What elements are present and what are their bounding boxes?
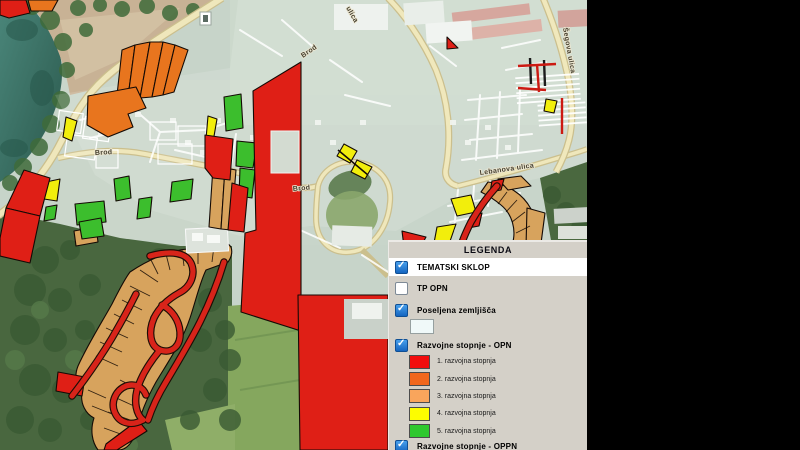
legend-row-tp-opn[interactable]: TP OPN [389, 280, 587, 297]
stage-label: 1. razvojna stopnja [437, 358, 496, 365]
swatch-poseljena-zemljisca [410, 319, 434, 334]
legend-label: Razvojne stopnje - OPN [417, 341, 512, 350]
legend-label: TEMATSKI SKLOP [417, 263, 490, 272]
legend-label: Poseljena zemljišča [417, 306, 496, 315]
legend-row-razvojne-stopnje-opn[interactable]: Razvojne stopnje - OPN [389, 337, 587, 354]
legend-stage-2: 2. razvojna stopnja [409, 370, 496, 387]
stage-label: 4. razvojna stopnja [437, 410, 496, 417]
swatch-stage-4 [409, 407, 430, 421]
swatch-stage-2 [409, 372, 430, 386]
swatch-stage-5 [409, 424, 430, 438]
legend-row-tematski-sklop[interactable]: TEMATSKI SKLOP [389, 258, 587, 276]
legend-panel: LEGENDA TEMATSKI SKLOP TP OPN Poseljena … [388, 240, 587, 450]
street-label-brod-west: Brod [95, 149, 113, 157]
legend-stage-4: 4. razvojna stopnja [409, 405, 496, 422]
app-window: { "map": { "type": "aerial-gis-viewer", … [0, 0, 800, 450]
stage-label: 2. razvojna stopnja [437, 376, 496, 383]
legend-title: LEGENDA [389, 245, 587, 255]
legend-stage-list: 1. razvojna stopnja 2. razvojna stopnja … [409, 353, 496, 440]
checkbox-tp-opn[interactable] [395, 282, 408, 295]
swatch-stage-1 [409, 355, 430, 369]
legend-label: Razvojne stopnje - OPPN [417, 442, 517, 450]
legend-stage-1: 1. razvojna stopnja [409, 353, 496, 370]
legend-label: TP OPN [417, 284, 448, 293]
legend-row-poseljena-zemljisca[interactable]: Poseljena zemljišča [389, 302, 587, 319]
swatch-stage-3 [409, 389, 430, 403]
stage-label: 5. razvojna stopnja [437, 428, 496, 435]
checkbox-poseljena-zemljisca[interactable] [395, 304, 408, 317]
stage-label: 3. razvojna stopnja [437, 393, 496, 400]
checkbox-tematski-sklop[interactable] [395, 261, 408, 274]
legend-row-razvojne-stopnje-oppn[interactable]: Razvojne stopnje - OPPN [389, 438, 587, 450]
checkbox-razvojne-stopnje-opn[interactable] [395, 339, 408, 352]
checkbox-razvojne-stopnje-oppn[interactable] [395, 440, 408, 450]
legend-stage-3: 3. razvojna stopnja [409, 388, 496, 405]
